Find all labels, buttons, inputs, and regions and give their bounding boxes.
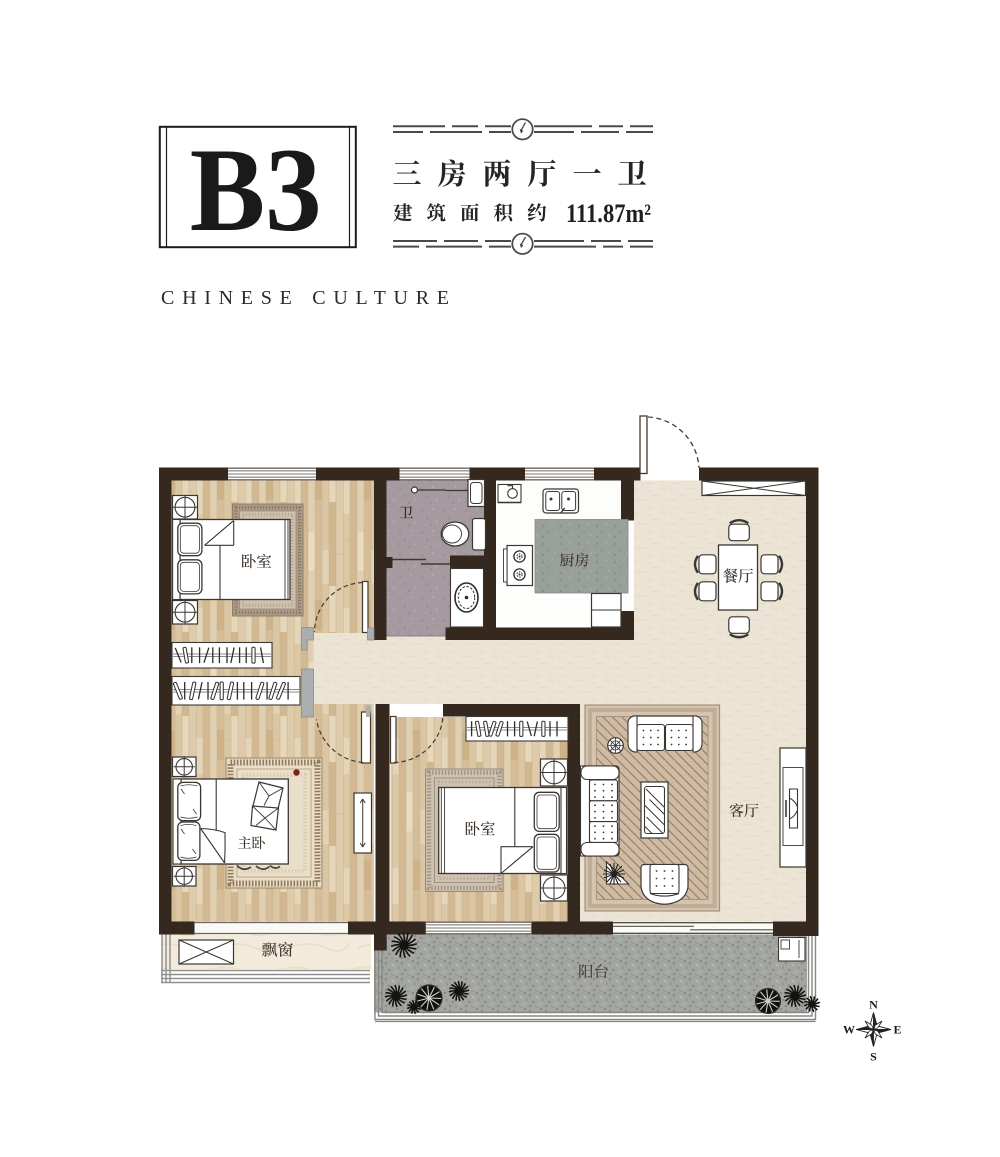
svg-text:S: S bbox=[870, 1050, 877, 1064]
svg-text:E: E bbox=[893, 1023, 901, 1037]
svg-text:111.87m²: 111.87m² bbox=[566, 199, 651, 228]
svg-text:CHINESE CULTURE: CHINESE CULTURE bbox=[161, 287, 457, 309]
svg-text:W: W bbox=[843, 1023, 855, 1037]
svg-text:N: N bbox=[869, 998, 878, 1012]
svg-text:B3: B3 bbox=[190, 123, 322, 256]
